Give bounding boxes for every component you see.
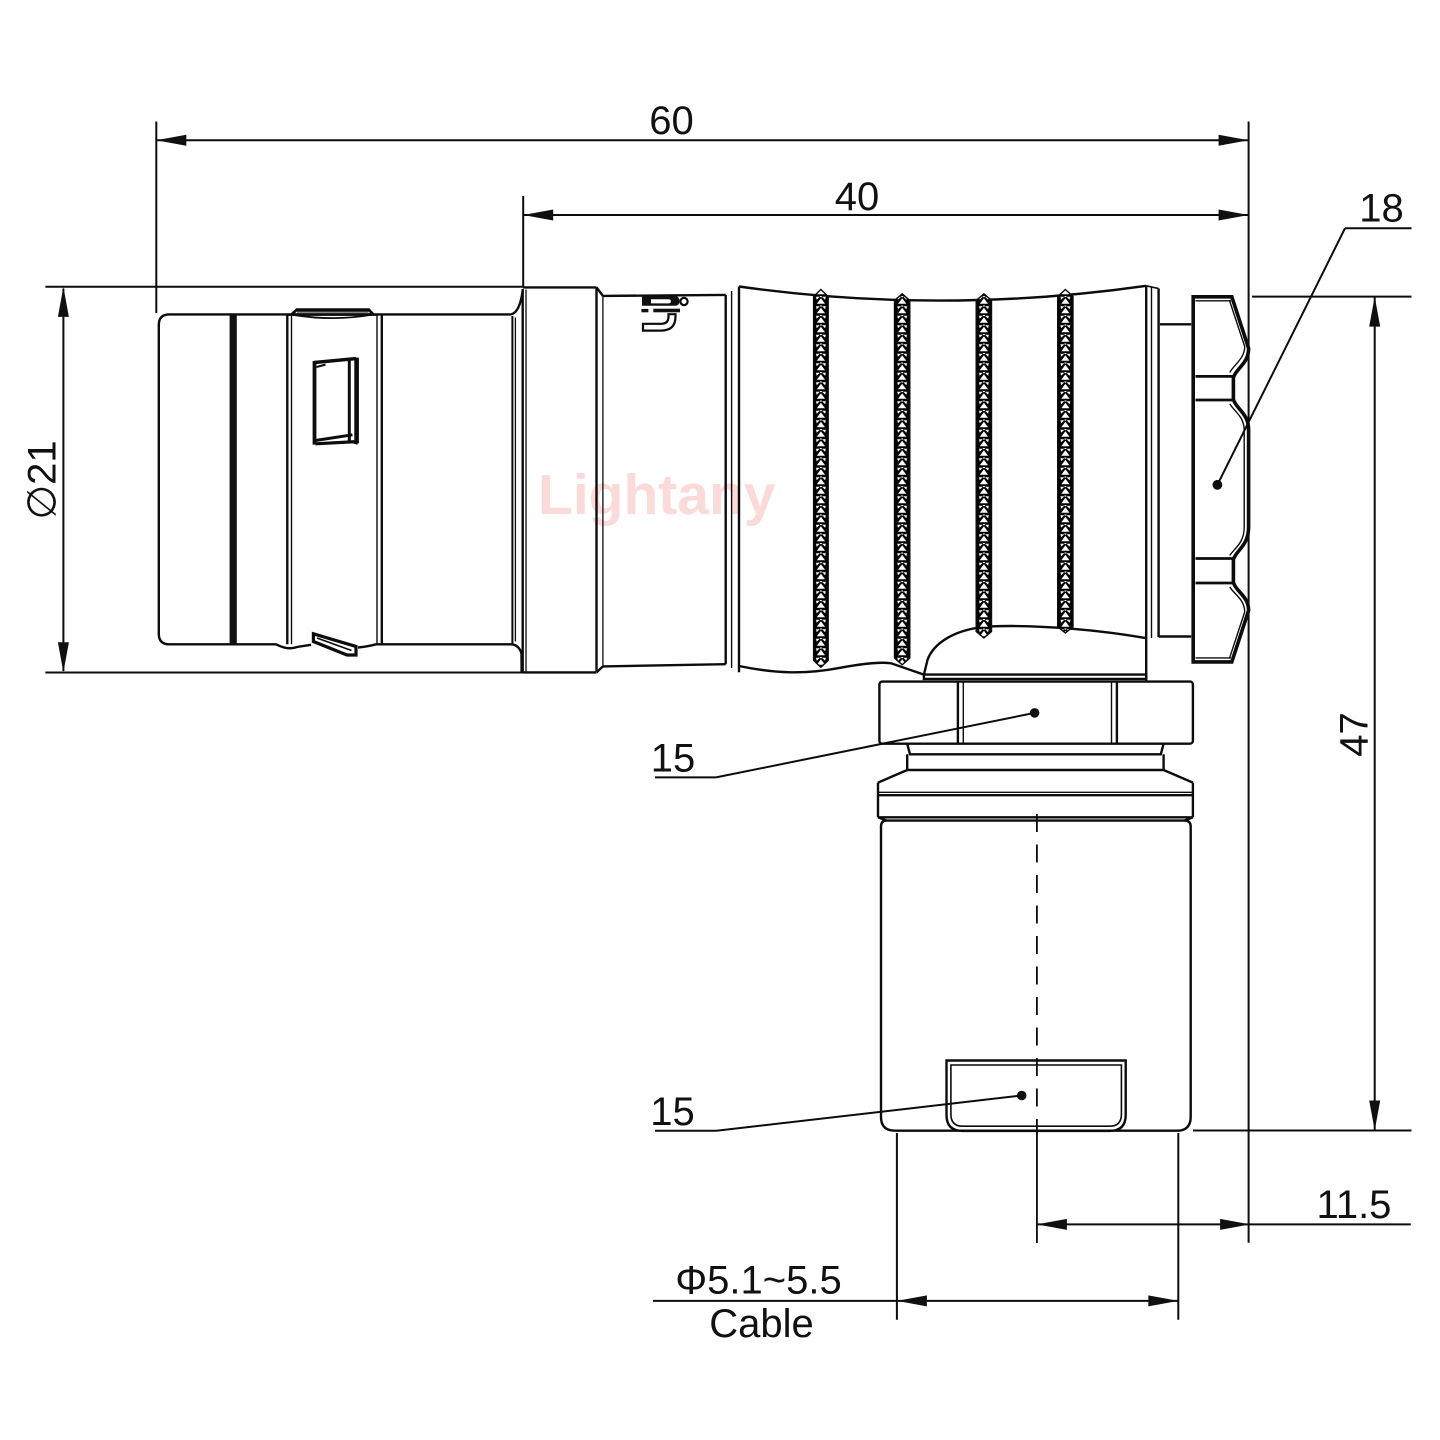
svg-text:60: 60: [649, 99, 694, 143]
svg-text:18: 18: [1359, 187, 1404, 231]
svg-text:∅21: ∅21: [21, 440, 65, 519]
svg-text:Φ5.1~5.5: Φ5.1~5.5: [675, 1259, 841, 1303]
svg-text:47: 47: [1333, 712, 1377, 757]
svg-text:11.5: 11.5: [1317, 1183, 1392, 1227]
svg-text:Cable: Cable: [709, 1302, 814, 1346]
svg-text:15: 15: [651, 737, 696, 781]
svg-text:40: 40: [835, 175, 880, 219]
svg-text:15: 15: [650, 1090, 695, 1134]
